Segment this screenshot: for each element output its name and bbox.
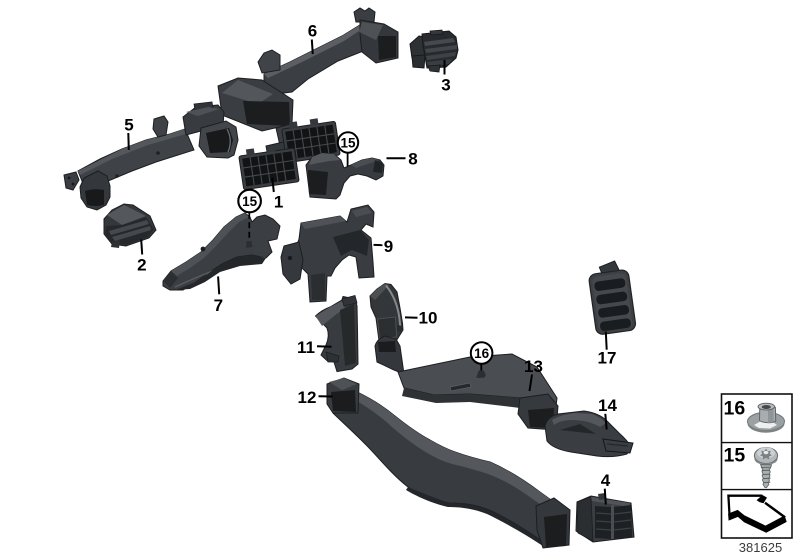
- svg-text:2: 2: [137, 256, 146, 275]
- svg-text:4: 4: [601, 471, 611, 490]
- svg-text:381625: 381625: [739, 540, 782, 555]
- svg-text:1: 1: [274, 193, 283, 212]
- svg-text:16: 16: [474, 346, 490, 361]
- svg-text:8: 8: [408, 150, 417, 169]
- svg-text:13: 13: [524, 357, 543, 376]
- svg-text:17: 17: [598, 349, 617, 368]
- svg-text:12: 12: [298, 388, 317, 407]
- svg-text:5: 5: [124, 116, 133, 135]
- svg-text:11: 11: [297, 338, 315, 357]
- svg-text:10: 10: [419, 309, 438, 328]
- svg-text:7: 7: [214, 296, 223, 315]
- svg-text:9: 9: [384, 237, 393, 256]
- svg-text:16: 16: [724, 398, 746, 420]
- svg-text:15: 15: [242, 194, 258, 209]
- svg-text:14: 14: [598, 396, 617, 415]
- svg-text:15: 15: [340, 135, 356, 150]
- svg-text:3: 3: [441, 76, 450, 95]
- svg-text:6: 6: [308, 22, 317, 41]
- svg-text:15: 15: [724, 445, 746, 467]
